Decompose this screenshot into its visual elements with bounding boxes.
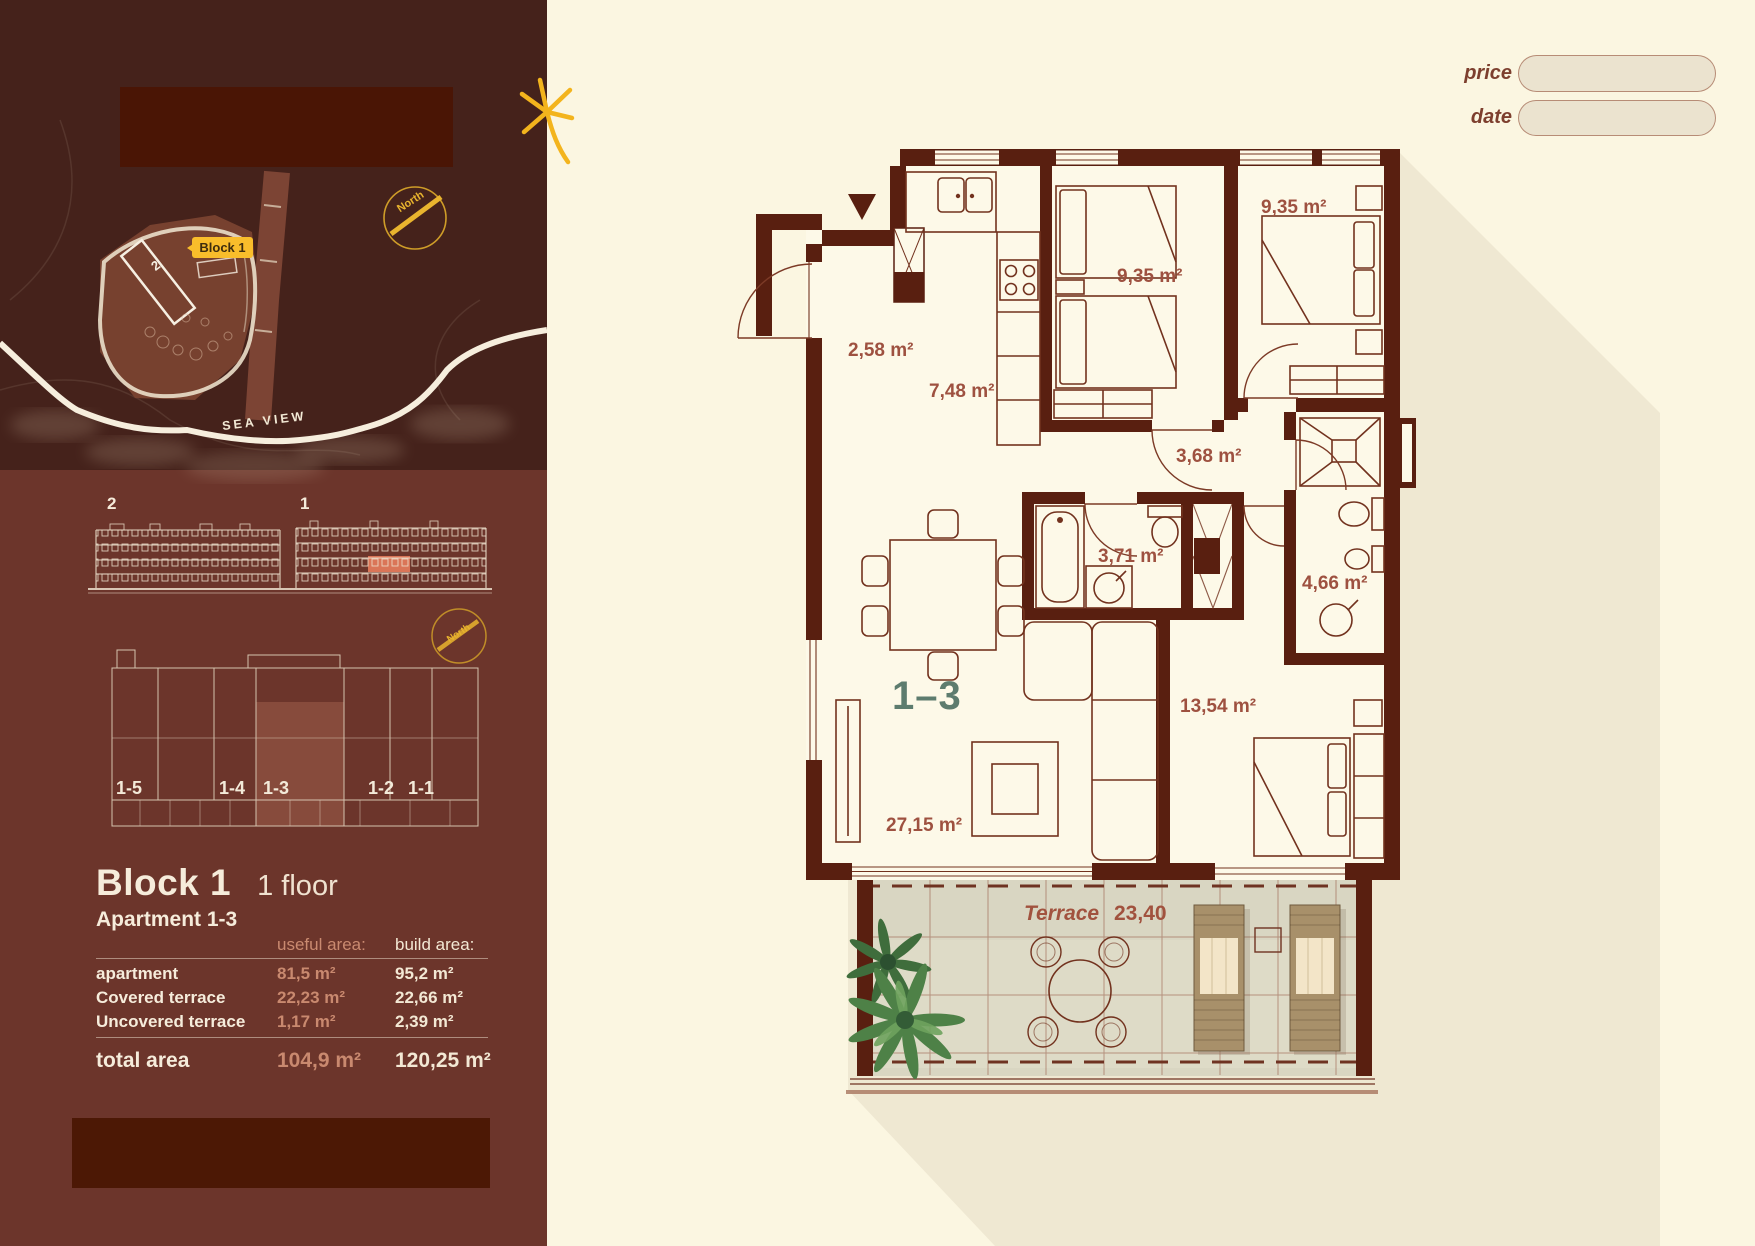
block-1-badge: Block 1: [192, 237, 253, 258]
terrace: [845, 880, 1378, 1092]
palm-plant: [845, 918, 965, 1080]
sun-lounger-2: [1290, 905, 1346, 1055]
site-map-background: [0, 0, 547, 470]
terrace-label: Terrace: [1024, 902, 1099, 926]
row-useful: 1,17 m²: [277, 1010, 395, 1034]
row-useful: 81,5 m²: [277, 962, 395, 986]
row-label: apartment: [96, 962, 277, 986]
row-label: Covered terrace: [96, 986, 277, 1010]
unit-number-label: 1–3: [892, 674, 962, 719]
area-table-header: useful area: build area:: [96, 934, 488, 955]
table-row-total: total area 104,9 m² 120,25 m²: [96, 1041, 488, 1081]
block-title-text: Block 1: [96, 862, 231, 903]
table-row-apartment: apartment 81,5 m² 95,2 m²: [96, 962, 488, 986]
bedroom1-area-label: 9,35 m²: [1117, 266, 1182, 288]
area-table: useful area: build area: apartment 81,5 …: [96, 934, 488, 1081]
price-label: price: [1432, 62, 1512, 85]
row-build: 95,2 m²: [395, 962, 488, 986]
duct-shaft: [894, 228, 924, 302]
apartment-plan: [738, 149, 1416, 1092]
windows: [806, 151, 1380, 881]
table-row-uncovered-terrace: Uncovered terrace 1,17 m² 2,39 m²: [96, 1010, 488, 1034]
total-useful: 104,9 m²: [277, 1041, 395, 1081]
elevation-label-1: 1: [300, 494, 309, 514]
terrace-slider-bedroom: [1215, 863, 1345, 880]
bathroom1-area-label: 3,71 m²: [1098, 546, 1163, 568]
table-divider: [96, 1037, 488, 1038]
overview-unit-1-3: 1-3: [263, 778, 289, 799]
door-arcs: [738, 264, 1346, 556]
total-label: total area: [96, 1041, 277, 1081]
kitchen-area-label: 7,48 m²: [929, 381, 994, 403]
walls: [756, 149, 1416, 880]
build-area-header: build area:: [395, 934, 488, 955]
floor-title-text: 1 floor: [257, 870, 338, 902]
sun-lounger-1: [1194, 905, 1250, 1055]
living-area-label: 27,15 m²: [886, 815, 962, 837]
apartment-title: Apartment 1-3: [96, 908, 237, 932]
page-title: Block 11 floor: [96, 862, 338, 904]
useful-area-header: useful area:: [277, 934, 395, 955]
corridor-area-label: 3,68 m²: [1176, 446, 1241, 468]
footer-contact-box: [72, 1118, 490, 1188]
terrace-table-chairs: [1028, 937, 1129, 1047]
date-label: date: [1432, 106, 1512, 129]
overview-unit-1-5: 1-5: [116, 778, 142, 799]
furniture: [836, 172, 1384, 860]
table-row-covered-terrace: Covered terrace 22,23 m² 22,66 m²: [96, 986, 488, 1010]
elevation-label-2: 2: [107, 494, 116, 514]
table-divider: [96, 958, 488, 959]
terrace-area-value: 23,40: [1114, 902, 1167, 926]
entrance-arrow-icon: [848, 194, 876, 220]
overview-unit-1-1: 1-1: [408, 778, 434, 799]
overview-unit-1-4: 1-4: [219, 778, 245, 799]
overview-unit-1-2: 1-2: [368, 778, 394, 799]
bathroom2-area-label: 4,66 m²: [1302, 573, 1367, 595]
bedroom2-area-label: 9,35 m²: [1261, 197, 1326, 219]
row-useful: 22,23 m²: [277, 986, 395, 1010]
price-field[interactable]: [1518, 55, 1716, 92]
lounger-side-table: [1255, 928, 1281, 952]
total-build: 120,25 m²: [395, 1041, 491, 1081]
hall-area-label: 2,58 m²: [848, 340, 913, 362]
floorplan-sheet: price date Block 1 2 North SEA VIEW 2 1 …: [0, 0, 1755, 1246]
row-build: 22,66 m²: [395, 986, 488, 1010]
bedroom3-area-label: 13,54 m²: [1180, 696, 1256, 718]
logo-placeholder-box: [120, 87, 453, 167]
terrace-slider-living: [852, 863, 1092, 880]
date-field[interactable]: [1518, 100, 1716, 136]
row-build: 2,39 m²: [395, 1010, 488, 1034]
row-label: Uncovered terrace: [96, 1010, 277, 1034]
